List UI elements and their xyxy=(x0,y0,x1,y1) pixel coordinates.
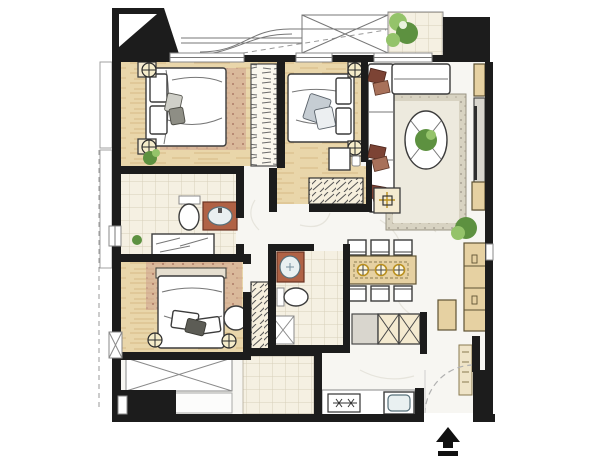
bottom-counter xyxy=(322,390,415,415)
bedroom-2-wardrobe xyxy=(251,64,277,166)
bedroom-2-bed xyxy=(146,68,226,146)
oval-coffee-table xyxy=(405,111,447,169)
balcony-top xyxy=(386,12,443,58)
hall-wardrobe xyxy=(251,282,269,352)
floor-plan-image xyxy=(0,0,600,476)
bedroom-3 xyxy=(121,262,248,352)
floor-plan-svg xyxy=(0,0,600,476)
window xyxy=(109,332,122,358)
exterior-projection-lines xyxy=(181,15,388,56)
base-cabinets xyxy=(352,314,420,344)
bathroom-plant xyxy=(132,235,142,245)
dining-table xyxy=(346,256,416,284)
dining-chairs-bottom xyxy=(348,286,412,301)
bathroom-1 xyxy=(121,174,237,260)
lamp-icon xyxy=(348,63,362,77)
toilet xyxy=(179,196,200,230)
entry-opening xyxy=(424,413,473,422)
pendant-lamp-icon xyxy=(394,265,405,276)
vanity-basin xyxy=(203,202,237,230)
window xyxy=(296,53,332,62)
lamp-icon xyxy=(222,334,236,348)
lamp-icon xyxy=(148,333,162,347)
kitchen-sink xyxy=(384,392,414,414)
toilet xyxy=(277,288,308,306)
master-dresser xyxy=(309,178,363,204)
window xyxy=(118,396,127,414)
window xyxy=(374,53,432,62)
master-bedroom xyxy=(277,62,369,204)
pendant-lamp-icon xyxy=(358,265,369,276)
vanity-basin xyxy=(277,252,304,282)
entrance-arrow-icon xyxy=(436,427,460,456)
window xyxy=(170,53,244,62)
bedroom-2 xyxy=(121,62,277,166)
window xyxy=(109,226,121,246)
bedroom-3-bed xyxy=(156,268,226,348)
lamp-icon xyxy=(142,63,156,77)
dining-chairs-top xyxy=(348,240,412,255)
master-door-opening xyxy=(277,204,309,212)
side-table xyxy=(374,188,400,213)
pendant-lamp-icon xyxy=(376,265,387,276)
master-bed xyxy=(288,74,354,142)
bathroom-2 xyxy=(272,251,343,345)
window xyxy=(486,244,493,260)
